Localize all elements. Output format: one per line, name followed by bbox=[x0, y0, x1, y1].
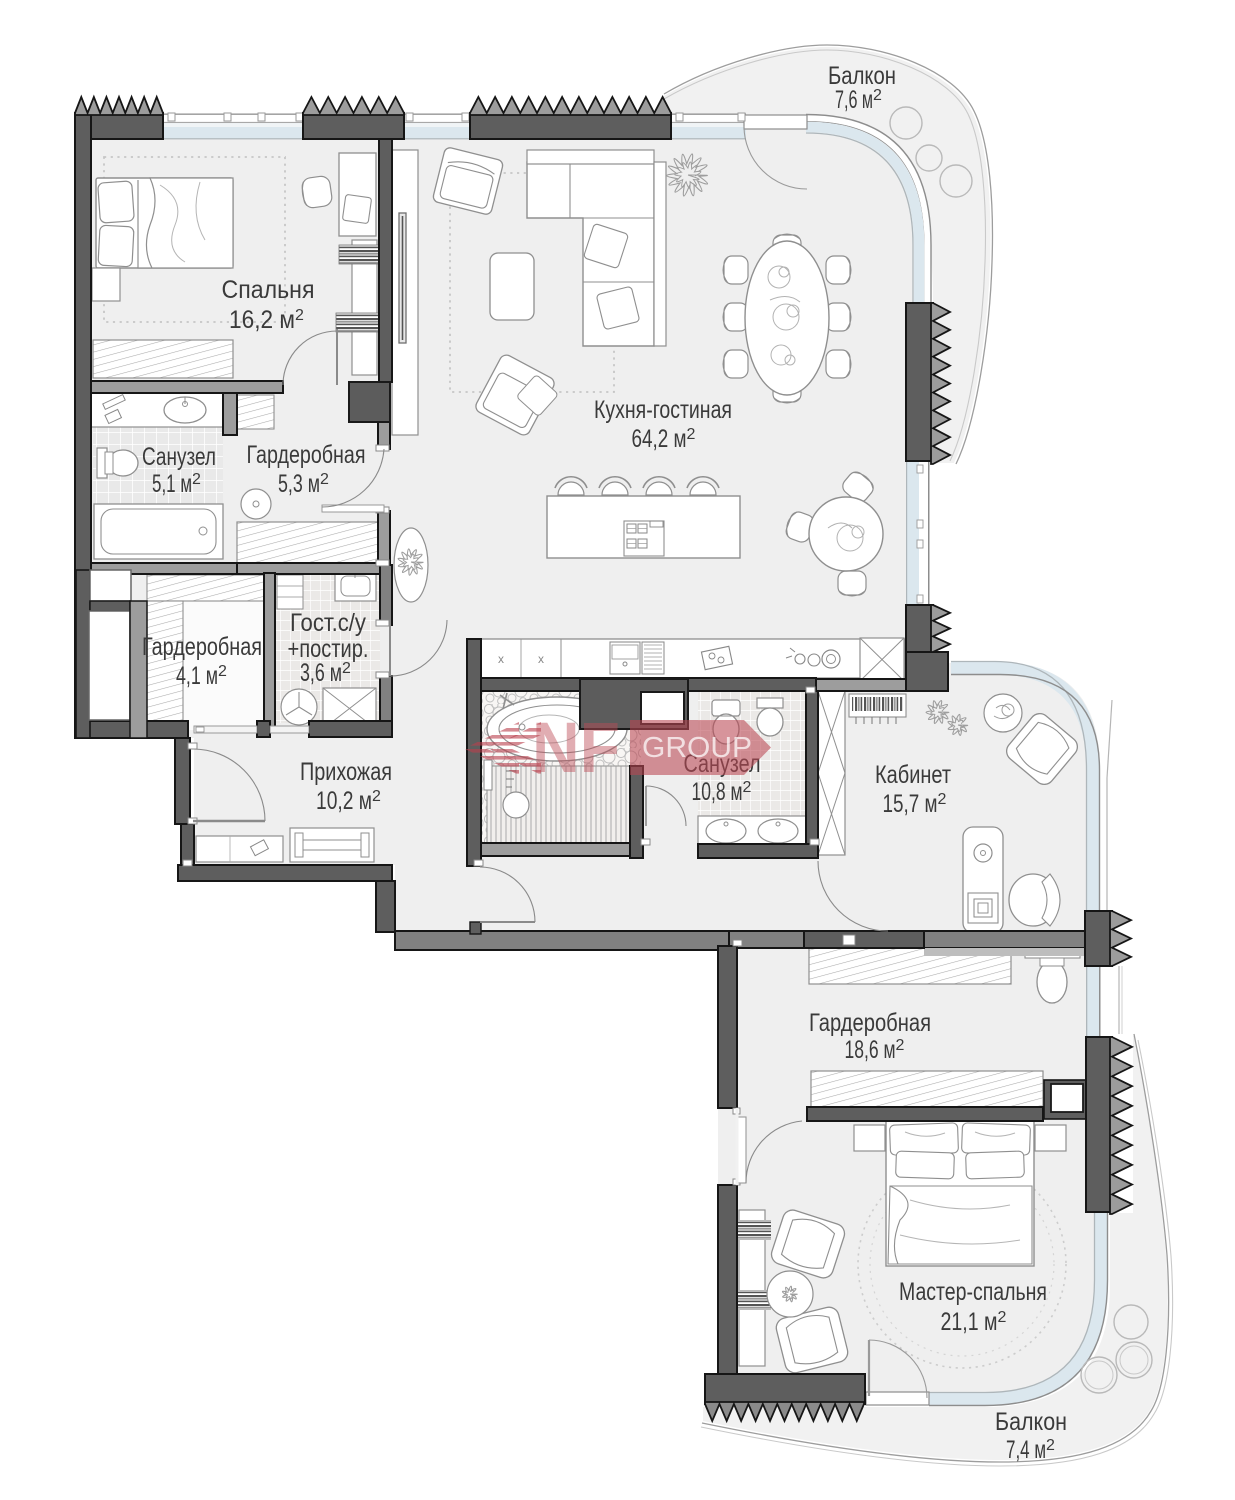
svg-text:Прихожая: Прихожая bbox=[300, 758, 392, 786]
svg-text:Спальня: Спальня bbox=[222, 276, 315, 304]
svg-text:10,2 м2: 10,2 м2 bbox=[316, 787, 381, 815]
svg-text:x: x bbox=[498, 652, 504, 666]
svg-text:Кабинет: Кабинет bbox=[875, 761, 951, 789]
svg-text:Мастер-спальня: Мастер-спальня bbox=[899, 1278, 1047, 1306]
svg-text:Гардеробная: Гардеробная bbox=[809, 1009, 931, 1037]
svg-text:Гардеробная: Гардеробная bbox=[247, 441, 366, 469]
svg-text:Санузел: Санузел bbox=[142, 443, 216, 471]
svg-text:x: x bbox=[538, 652, 544, 666]
svg-text:Балкон: Балкон bbox=[995, 1408, 1067, 1436]
svg-text:64,2 м2: 64,2 м2 bbox=[632, 425, 696, 453]
svg-text:Кухня-гостиная: Кухня-гостиная bbox=[594, 396, 732, 424]
svg-text:21,1 м2: 21,1 м2 bbox=[941, 1308, 1007, 1336]
svg-text:Гардеробная: Гардеробная bbox=[142, 633, 262, 661]
svg-text:NF: NF bbox=[532, 709, 620, 788]
svg-text:GROUP: GROUP bbox=[642, 732, 752, 764]
svg-text:15,7 м2: 15,7 м2 bbox=[883, 790, 947, 818]
svg-text:16,2 м2: 16,2 м2 bbox=[229, 306, 304, 334]
svg-text:Гост.с/у: Гост.с/у bbox=[290, 609, 366, 637]
